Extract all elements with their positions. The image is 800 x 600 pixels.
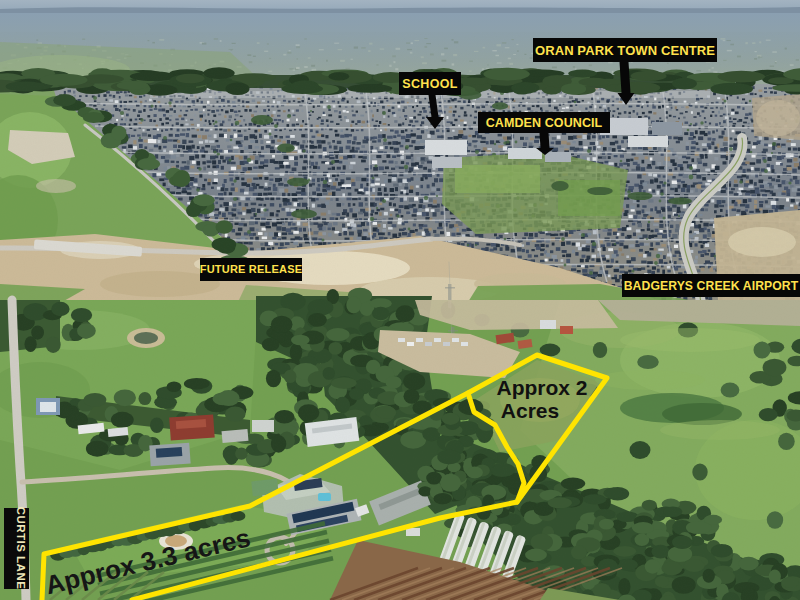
svg-text:FUTURE RELEASE: FUTURE RELEASE <box>200 263 302 275</box>
svg-text:Acres: Acres <box>501 399 559 422</box>
svg-text:CAMDEN COUNCIL: CAMDEN COUNCIL <box>486 116 603 130</box>
svg-text:Approx 2: Approx 2 <box>496 376 587 399</box>
svg-text:SCHOOL: SCHOOL <box>402 77 457 91</box>
svg-text:CURTIS LANE: CURTIS LANE <box>15 507 27 590</box>
svg-text:ORAN PARK TOWN CENTRE: ORAN PARK TOWN CENTRE <box>535 43 715 58</box>
svg-text:BADGERYS CREEK AIRPORT: BADGERYS CREEK AIRPORT <box>624 279 799 293</box>
